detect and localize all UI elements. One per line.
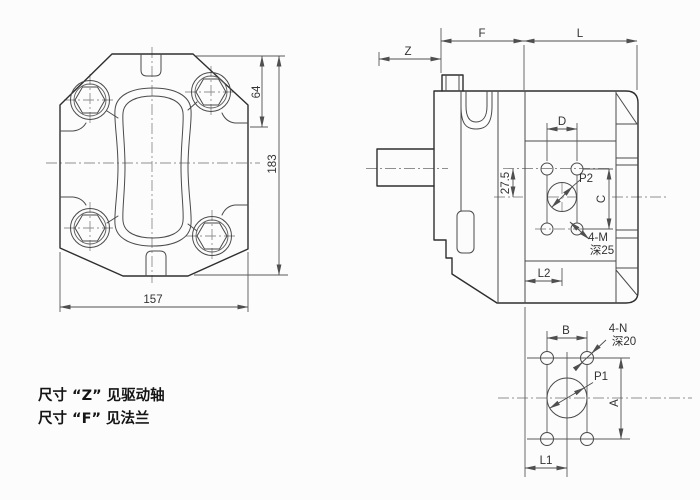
side-view-shaft [377,149,434,186]
port-p2-label: P2 [579,173,593,185]
side-view: Z F L D 27.5 P2 C 4-M 深25 L2 [366,28,668,303]
thread-4m-label: 4-M [588,232,608,244]
dim-f-label: F [478,28,485,40]
notes: 尺寸 “Z” 见驱动轴 尺寸 “F” 见法兰 [38,386,165,427]
dim-157-label: 157 [143,294,162,306]
dim-c-label: C [596,195,608,203]
drawing-canvas: 64 183 157 [0,0,700,500]
front-view: 64 183 157 [46,47,288,312]
thread-4n-depth-label: 深20 [612,334,636,348]
dim-l1-label: L1 [540,455,553,467]
side-view-centerlines [366,169,668,230]
side-view-body-outline [434,75,638,303]
front-view-dimensions: 64 183 157 [60,56,288,312]
side-view-dimensions: Z F L D 27.5 P2 C 4-M 深25 L2 [379,28,637,286]
dim-l2-label: L2 [538,268,551,280]
dim-a-label: A [609,399,621,407]
note-line-2: 尺寸 “F” 见法兰 [38,409,150,427]
dim-64-label: 64 [251,85,263,98]
note-line-1: 尺寸 “Z” 见驱动轴 [38,386,165,404]
port-p1-label: P1 [594,371,608,383]
front-view-keyway-tabs [141,54,166,276]
dim-183-label: 183 [267,154,279,173]
bottom-view-dimensions: B 4-N 深20 P1 A L1 [525,323,636,468]
thread-4n-label: 4-N [609,323,628,335]
dim-27-5-label: 27.5 [500,172,512,194]
dim-d-label: D [558,116,566,128]
pump-drawing: 64 183 157 [0,0,700,500]
dim-z-label: Z [404,46,411,58]
dim-b-label: B [562,325,570,337]
thread-4m-depth-label: 深25 [590,243,614,257]
bottom-view: B 4-N 深20 P1 A L1 [498,307,692,477]
dim-l-label: L [577,28,584,40]
front-view-bolts [71,73,232,256]
